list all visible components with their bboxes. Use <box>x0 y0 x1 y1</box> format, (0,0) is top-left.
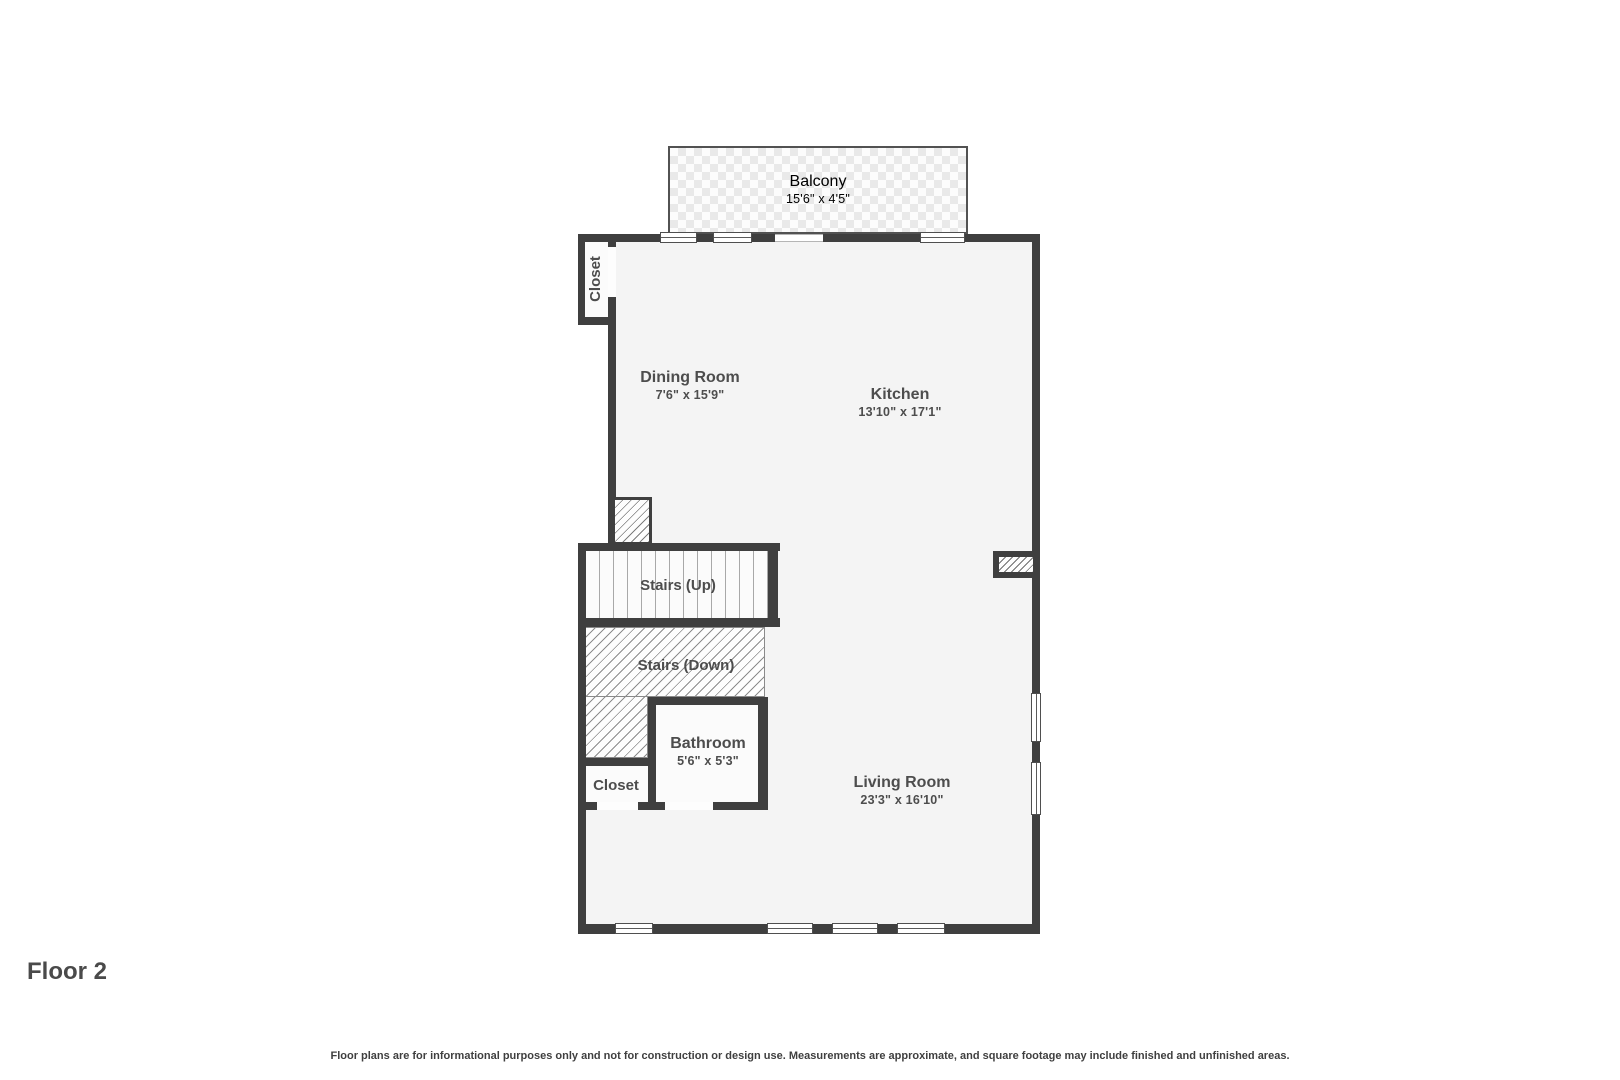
living-room-name: Living Room <box>854 773 951 792</box>
closet-top-door-opening <box>608 247 616 297</box>
window-bottom-3 <box>832 923 878 934</box>
dining-room-name: Dining Room <box>640 368 740 387</box>
window-bottom-1 <box>615 923 653 934</box>
window-bottom-4 <box>897 923 945 934</box>
living-room-label: Living Room 23'3" x 16'10" <box>854 773 951 809</box>
balcony-dims: 15'6" x 4'5" <box>786 191 850 208</box>
wall-right <box>1032 234 1040 934</box>
fireplace-hatch <box>999 557 1033 572</box>
stairs-bottom-wall <box>578 618 780 627</box>
floor-plan: Balcony 15'6" x 4'5" Closet Dining Room <box>0 0 1620 1080</box>
stairs-down-hatch-lower <box>586 697 648 758</box>
closet-bottom-name: Closet <box>593 777 639 795</box>
closet-top-name: Closet <box>587 256 605 302</box>
window-top-3 <box>920 232 965 243</box>
window-top-1 <box>660 232 697 243</box>
kitchen-name: Kitchen <box>858 385 941 404</box>
bathroom-right-wall <box>758 697 768 810</box>
window-right-1 <box>1031 693 1041 742</box>
floor-title: Floor 2 <box>27 958 107 986</box>
kitchen-dims: 13'10" x 17'1" <box>858 404 941 421</box>
chimney-column <box>612 497 652 545</box>
balcony-door-opening <box>775 234 823 242</box>
living-room-dims: 23'3" x 16'10" <box>854 792 951 809</box>
stairs-down-label: Stairs (Down) <box>638 657 735 675</box>
stairs-down-name: Stairs (Down) <box>638 657 735 675</box>
dining-room-label: Dining Room 7'6" x 15'9" <box>640 368 740 404</box>
closet-top-bottom-wall <box>578 317 616 325</box>
window-top-2 <box>713 232 752 243</box>
stairs-top-wall <box>578 543 780 551</box>
window-right-2 <box>1031 762 1041 815</box>
bathroom-label: Bathroom 5'6" x 5'3" <box>670 734 746 770</box>
bathroom-left-wall <box>648 697 656 810</box>
bathroom-door-opening <box>665 802 713 810</box>
closet-bottom-door-opening <box>597 802 638 810</box>
stairs-up-label: Stairs (Up) <box>640 577 716 595</box>
dining-room-dims: 7'6" x 15'9" <box>640 387 740 404</box>
bathroom-top-wall <box>648 697 768 705</box>
bathroom-name: Bathroom <box>670 734 746 753</box>
stairs-up-name: Stairs (Up) <box>640 577 716 595</box>
window-bottom-2 <box>767 923 813 934</box>
bathroom-dims: 5'6" x 5'3" <box>670 753 746 770</box>
wall-left-lower <box>578 543 586 924</box>
closet-bottom-label: Closet <box>593 777 639 795</box>
closet-top-label: Closet <box>587 256 605 302</box>
stairs-right-wall <box>768 551 778 618</box>
kitchen-label: Kitchen 13'10" x 17'1" <box>858 385 941 421</box>
balcony: Balcony 15'6" x 4'5" <box>668 146 968 234</box>
balcony-name: Balcony <box>790 172 847 191</box>
disclaimer-text: Floor plans are for informational purpos… <box>0 1050 1620 1062</box>
closet-top-left-wall <box>578 242 585 325</box>
closet-stairs-divider-wall <box>578 758 656 766</box>
